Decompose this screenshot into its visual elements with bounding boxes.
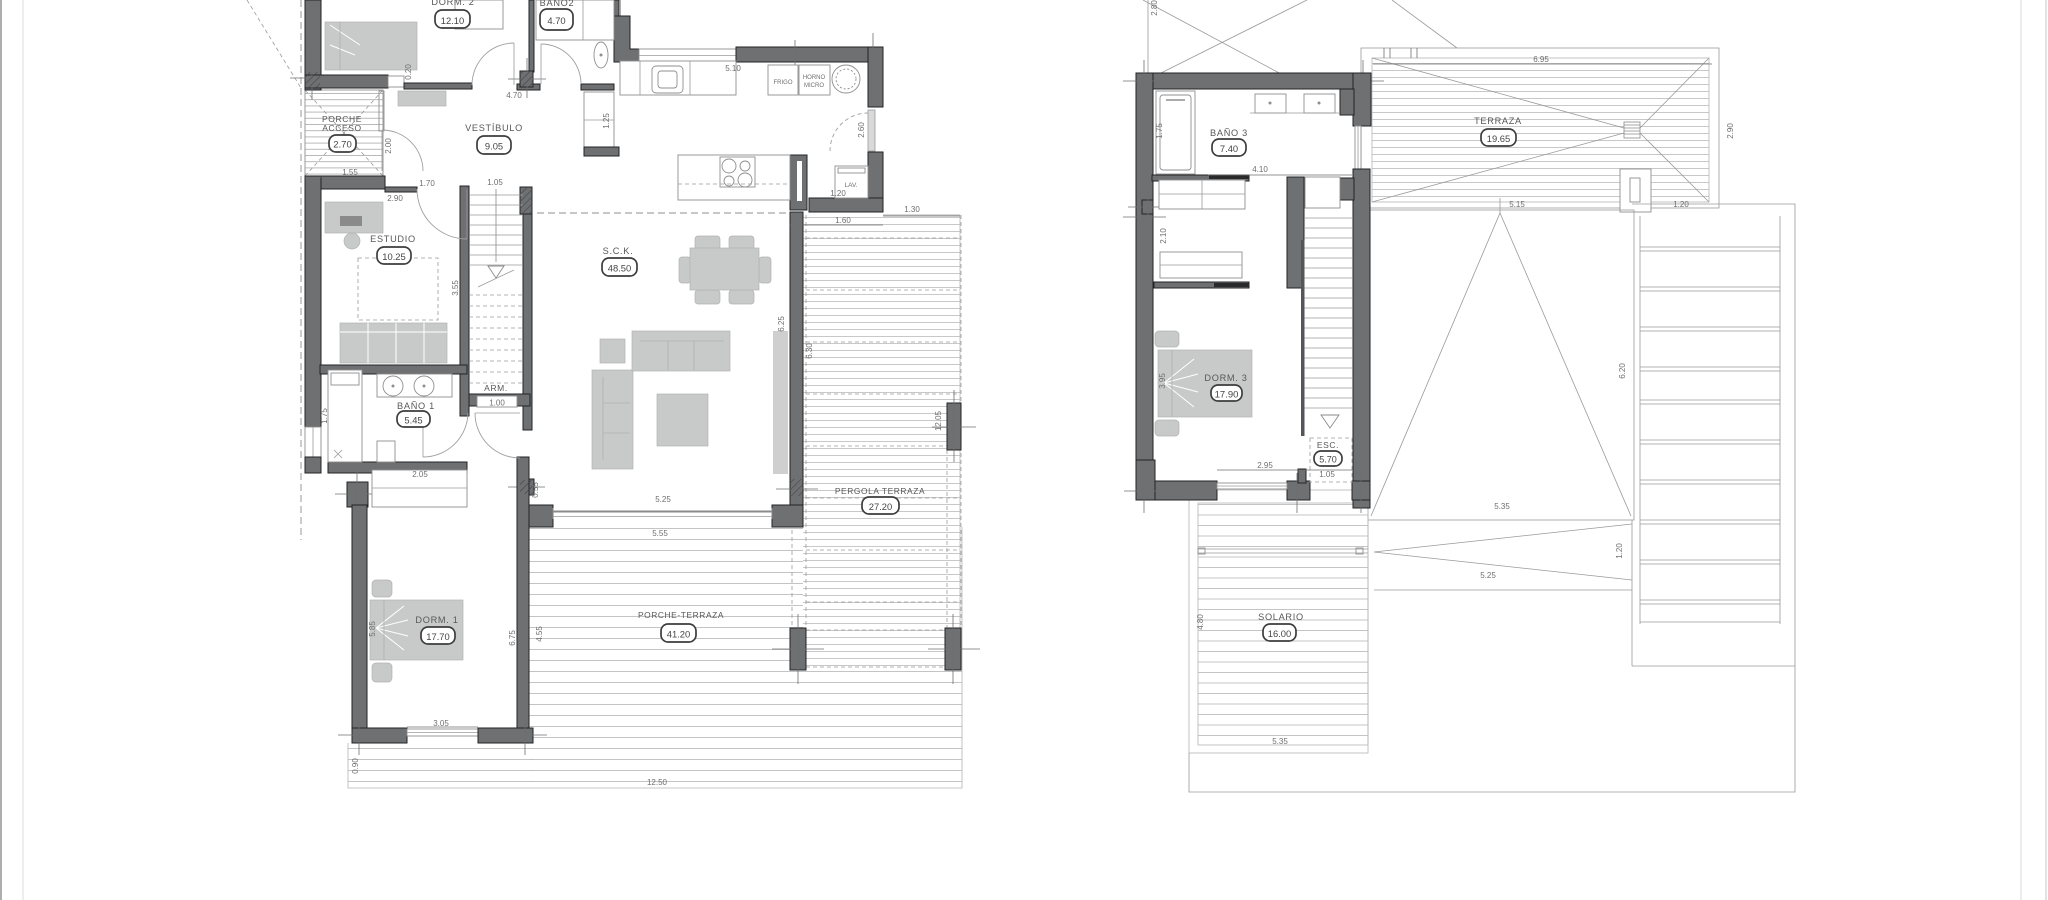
svg-text:0.90: 0.90 [351, 758, 360, 774]
svg-text:7.40: 7.40 [1220, 143, 1238, 154]
svg-text:BAÑO 1: BAÑO 1 [397, 401, 435, 411]
svg-text:ESTUDIO: ESTUDIO [370, 234, 416, 244]
svg-text:27.20: 27.20 [869, 501, 892, 512]
svg-text:2.95: 2.95 [406, 366, 422, 375]
svg-text:6.75: 6.75 [508, 630, 517, 646]
svg-text:1.60: 1.60 [835, 216, 851, 225]
svg-text:BAÑO2: BAÑO2 [540, 0, 575, 8]
svg-text:6.25: 6.25 [777, 316, 786, 332]
svg-text:ESC.: ESC. [1317, 440, 1339, 450]
svg-text:5.15: 5.15 [1509, 200, 1525, 209]
svg-text:10.25: 10.25 [382, 251, 405, 262]
svg-text:1.05: 1.05 [487, 178, 503, 187]
svg-text:5.85: 5.85 [368, 621, 377, 637]
svg-text:1.75: 1.75 [1155, 123, 1164, 139]
svg-text:1.20: 1.20 [1673, 200, 1689, 209]
svg-text:1.00: 1.00 [489, 399, 505, 408]
svg-text:4.70: 4.70 [547, 15, 565, 26]
svg-text:1.30: 1.30 [904, 205, 920, 214]
svg-text:5.35: 5.35 [1272, 737, 1288, 746]
svg-text:2.95: 2.95 [1257, 461, 1273, 470]
svg-text:1.55: 1.55 [342, 168, 358, 177]
svg-text:12.10: 12.10 [441, 15, 464, 26]
svg-text:6.95: 6.95 [1533, 55, 1549, 64]
svg-text:MICRO: MICRO [804, 83, 824, 89]
svg-text:5.10: 5.10 [725, 64, 741, 73]
svg-text:SOLARIO: SOLARIO [1258, 612, 1304, 622]
svg-text:0.55: 0.55 [531, 482, 540, 498]
svg-text:PERGOLA TERRAZA: PERGOLA TERRAZA [835, 486, 925, 496]
svg-text:48.50: 48.50 [608, 263, 631, 274]
svg-text:1.25: 1.25 [602, 113, 611, 129]
svg-text:16.00: 16.00 [1268, 628, 1291, 639]
svg-text:1.70: 1.70 [419, 179, 435, 188]
svg-text:6.20: 6.20 [1618, 363, 1627, 379]
svg-text:12.50: 12.50 [647, 778, 668, 787]
svg-text:2.00: 2.00 [384, 138, 393, 154]
svg-text:4.70: 4.70 [506, 91, 522, 100]
svg-text:ARM.: ARM. [484, 383, 508, 393]
svg-text:1.20: 1.20 [1615, 543, 1624, 559]
svg-text:4.55: 4.55 [535, 626, 544, 642]
svg-text:5.25: 5.25 [655, 495, 671, 504]
svg-text:DORM. 2: DORM. 2 [431, 0, 474, 7]
svg-text:6.30: 6.30 [805, 343, 814, 359]
svg-text:PORCHE-TERRAZA: PORCHE-TERRAZA [638, 610, 724, 620]
svg-text:2.70: 2.70 [333, 140, 352, 151]
svg-text:2.10: 2.10 [1159, 228, 1168, 244]
svg-text:5.70: 5.70 [1319, 455, 1337, 465]
svg-text:2.05: 2.05 [412, 470, 428, 479]
svg-text:17.70: 17.70 [426, 631, 449, 642]
svg-text:1.75: 1.75 [320, 408, 329, 424]
svg-text:2.75: 2.75 [311, 2, 320, 18]
svg-text:3.95: 3.95 [1158, 373, 1167, 389]
svg-text:19.65: 19.65 [1487, 133, 1510, 144]
svg-text:HORNO: HORNO [803, 75, 826, 81]
svg-text:2.60: 2.60 [857, 122, 866, 138]
svg-text:DORM. 1: DORM. 1 [415, 615, 458, 625]
svg-text:0.20: 0.20 [404, 64, 413, 80]
svg-text:S.C.K.: S.C.K. [603, 246, 634, 256]
svg-text:5.25: 5.25 [1480, 571, 1496, 580]
svg-text:5.55: 5.55 [652, 529, 668, 538]
svg-text:ACCESO: ACCESO [322, 123, 362, 133]
svg-text:9.05: 9.05 [485, 141, 503, 152]
svg-text:12.05: 12.05 [934, 410, 943, 431]
svg-text:LAV.: LAV. [844, 182, 857, 189]
svg-text:1.20: 1.20 [830, 189, 846, 198]
svg-text:2.80: 2.80 [1150, 0, 1159, 16]
svg-text:TERRAZA: TERRAZA [1474, 116, 1522, 126]
svg-text:FRIGO: FRIGO [774, 80, 793, 86]
svg-text:VESTÍBULO: VESTÍBULO [465, 123, 523, 133]
svg-text:4.80: 4.80 [1196, 614, 1205, 630]
svg-text:1.05: 1.05 [1319, 470, 1335, 479]
svg-text:BAÑO 3: BAÑO 3 [1210, 128, 1248, 138]
svg-text:17.90: 17.90 [1215, 390, 1239, 401]
svg-text:5.35: 5.35 [1494, 502, 1510, 511]
svg-text:41.20: 41.20 [667, 629, 690, 640]
svg-text:4.10: 4.10 [1252, 165, 1268, 174]
svg-text:2.90: 2.90 [1726, 123, 1735, 139]
svg-text:5.45: 5.45 [404, 415, 422, 426]
svg-text:3.55: 3.55 [451, 280, 460, 296]
svg-text:2.90: 2.90 [387, 194, 403, 203]
svg-text:DORM. 3: DORM. 3 [1204, 373, 1247, 383]
